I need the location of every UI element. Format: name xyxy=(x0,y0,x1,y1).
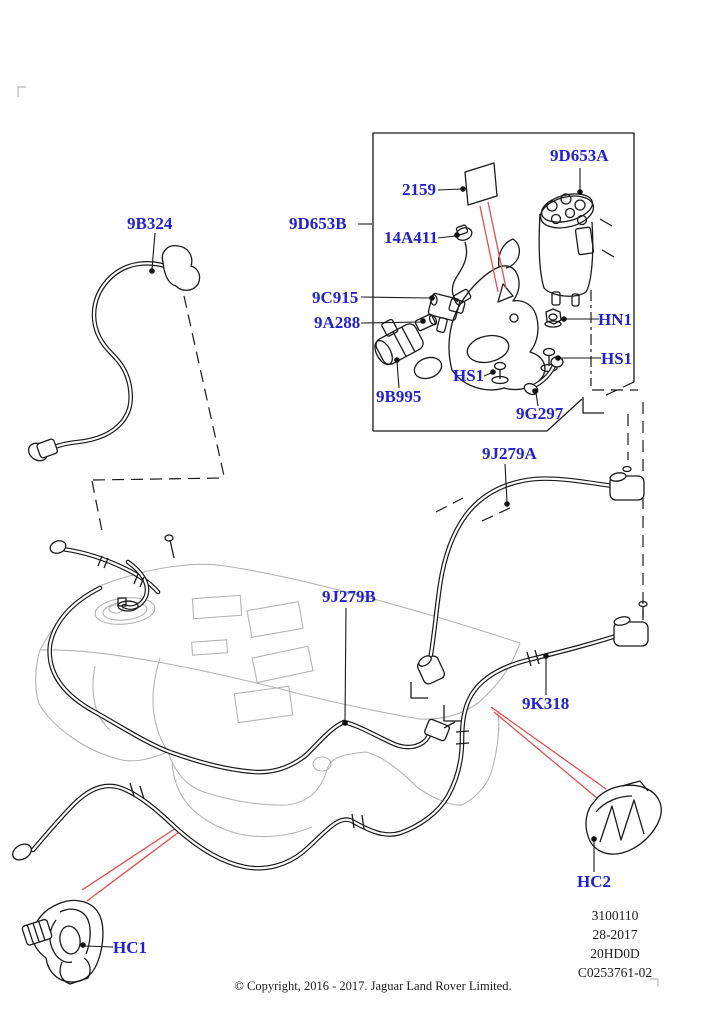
part-label-9B324[interactable]: 9B324 xyxy=(127,215,172,232)
charcoal-canister-9D653A xyxy=(537,189,614,306)
stamp-line-4: C0253761-02 xyxy=(560,963,670,982)
part-label-HC1[interactable]: HC1 xyxy=(113,939,147,956)
tank-top-hoses xyxy=(48,535,174,611)
part-label-9B995[interactable]: 9B995 xyxy=(376,388,421,405)
fuel-line-9J279A xyxy=(411,467,644,722)
locator-dashed-lines xyxy=(92,290,643,616)
drawing-reference-block: 3100110 28-2017 20HD0D C0253761-02 xyxy=(560,906,670,982)
part-label-9A288[interactable]: 9A288 xyxy=(314,314,360,331)
part-label-9D653A[interactable]: 9D653A xyxy=(550,147,609,164)
part-label-2159[interactable]: 2159 xyxy=(402,181,436,198)
label-sticker-2159 xyxy=(465,163,497,205)
callout-leaders xyxy=(80,168,601,948)
fuel-lines-diagram-canvas xyxy=(0,0,724,1024)
stamp-line-3: 20HD0D xyxy=(560,944,670,963)
part-label-9J279B[interactable]: 9J279B xyxy=(322,588,376,605)
part-label-9G297[interactable]: 9G297 xyxy=(516,405,563,422)
part-label-HN1[interactable]: HN1 xyxy=(598,311,632,328)
stamp-line-2: 28-2017 xyxy=(560,925,670,944)
part-label-9D653B[interactable]: 9D653B xyxy=(289,215,347,232)
part-label-HS1-left[interactable]: HS1 xyxy=(453,367,484,384)
o-ring xyxy=(411,354,444,382)
clip-HC2 xyxy=(586,781,661,854)
part-label-9K318[interactable]: 9K318 xyxy=(522,695,569,712)
part-label-9J279A[interactable]: 9J279A xyxy=(482,445,537,462)
copyright-notice: © Copyright, 2016 - 2017. Jaguar Land Ro… xyxy=(173,979,573,994)
parts-diagram-page: 9B324 9D653B 2159 14A411 9C915 9A288 9B9… xyxy=(0,0,724,1024)
part-label-9C915[interactable]: 9C915 xyxy=(312,289,358,306)
nut-HN1 xyxy=(545,309,561,327)
tank-stickers xyxy=(192,595,313,722)
sensor-14A411 xyxy=(449,225,474,314)
stamp-line-1: 3100110 xyxy=(560,906,670,925)
part-label-HC2[interactable]: HC2 xyxy=(577,873,611,890)
part-label-14A411[interactable]: 14A411 xyxy=(384,229,438,246)
clip-HC1 xyxy=(22,900,103,984)
part-label-HS1-right[interactable]: HS1 xyxy=(601,350,632,367)
vent-hose-9B324 xyxy=(25,246,199,465)
fuel-line-9J279B xyxy=(50,588,455,772)
